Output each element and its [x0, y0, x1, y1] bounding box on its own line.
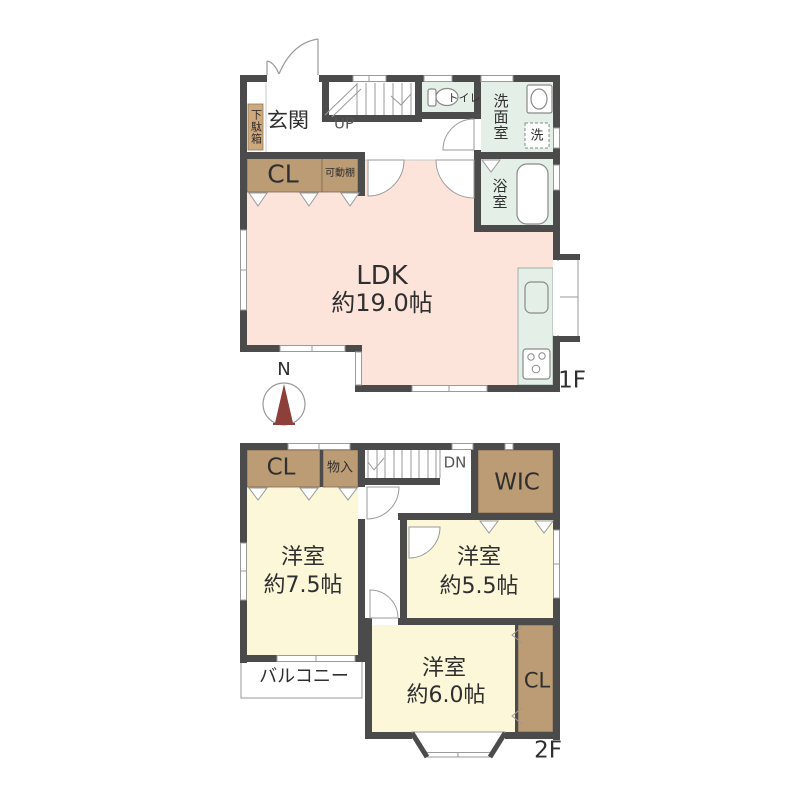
- stairs-up-label: UP: [334, 117, 354, 132]
- washer-label: 洗: [530, 130, 543, 143]
- bathroom-label: 浴室: [492, 178, 507, 210]
- closet-1f-label: CL: [267, 162, 298, 187]
- kitchen-counter: [518, 268, 553, 385]
- bedroom1-size-label: 約7.5帖: [264, 575, 343, 597]
- washroom-sink-icon: [527, 85, 552, 113]
- balcony-label: バルコニー: [259, 668, 349, 686]
- entrance-door-arc: [266, 39, 318, 152]
- bathtub-icon: [517, 164, 548, 224]
- bedroom2-size-label: 約5.5帖: [440, 576, 519, 598]
- shoe-box-label: 下駄箱: [251, 109, 262, 145]
- stairs-up: [325, 83, 411, 117]
- bedroom3-name-label: 洋室: [422, 658, 466, 680]
- bedroom3-bay-window: [412, 732, 505, 757]
- bedroom3-size-label: 約6.0帖: [407, 685, 486, 707]
- storage-label: 物入: [327, 462, 353, 475]
- stairs-down-label: DN: [444, 456, 467, 471]
- stairs-down-arrow-icon: [368, 458, 384, 470]
- movable-shelf-label: 可動棚: [325, 169, 355, 179]
- closet-2f-left-label: CL: [267, 457, 296, 480]
- entrance-label: 玄関: [267, 111, 309, 132]
- floor1-label: 1F: [558, 370, 586, 393]
- floor2-label: 2F: [534, 740, 562, 763]
- stairs-down: [368, 450, 440, 478]
- stairs-up-arrow-icon: [391, 94, 411, 105]
- closet-2f-right-label: CL: [524, 671, 550, 692]
- washroom-label: 洗面室: [493, 93, 508, 141]
- ldk-size-label: 約19.0帖: [331, 291, 432, 315]
- floorplan-canvas: 下駄箱 玄関 UP トイレ 洗面室 洗 浴室 CL 可動棚 LDK 約19.0帖…: [0, 0, 800, 800]
- floor1-plan: [240, 39, 580, 425]
- washroom-door-arc: [443, 119, 474, 150]
- bedroom2-name-label: 洋室: [457, 547, 501, 569]
- compass-north-label: N: [277, 361, 290, 379]
- bedroom1-name-label: 洋室: [281, 547, 325, 569]
- wic-label: WIC: [494, 472, 540, 495]
- floorplan-drawing: [0, 0, 800, 800]
- compass: [263, 383, 305, 425]
- stove-icon: [523, 349, 550, 379]
- toilet-label: トイレ: [448, 93, 481, 104]
- ldk-name-label: LDK: [356, 263, 408, 289]
- bedroom3-door-arc: [370, 590, 398, 618]
- kitchen-bay-window: [553, 254, 580, 342]
- bedroom1-door-arc: [367, 487, 399, 519]
